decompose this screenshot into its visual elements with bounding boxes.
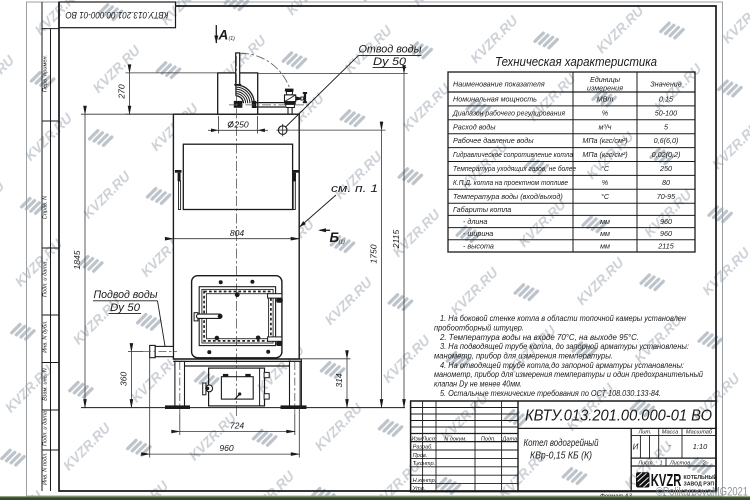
svg-text:N докум.: N докум. bbox=[444, 436, 467, 442]
svg-text:Наименование показателя: Наименование показателя bbox=[453, 80, 545, 89]
svg-text:мм: мм bbox=[600, 217, 610, 226]
svg-text:МВт: МВт bbox=[597, 95, 614, 104]
svg-text:МПа (кгс/см²): МПа (кгс/см²) bbox=[582, 150, 627, 159]
svg-text:80: 80 bbox=[662, 178, 670, 187]
svg-text:Габариты котла: Габариты котла bbox=[453, 205, 511, 214]
svg-text:°С: °С bbox=[601, 164, 610, 173]
svg-text:2115: 2115 bbox=[391, 230, 401, 250]
svg-text:0,6(6,0): 0,6(6,0) bbox=[654, 136, 679, 145]
svg-text:К.П.Д. котла на проектном топл: К.П.Д. котла на проектном топливе bbox=[453, 178, 568, 187]
svg-text:Лит.: Лит. bbox=[637, 430, 651, 436]
svg-text:Подп.: Подп. bbox=[481, 436, 496, 442]
svg-text:1:10: 1:10 bbox=[693, 442, 708, 451]
svg-text:960: 960 bbox=[660, 229, 672, 238]
svg-text:0,02(0,2): 0,02(0,2) bbox=[652, 150, 681, 159]
svg-text:Гидравлическое сопротивление к: Гидравлическое сопротивление котла bbox=[453, 150, 573, 159]
svg-text:Н.контр.: Н.контр. bbox=[413, 478, 437, 484]
svg-text:2. Температура воды на входе: 2. Температура воды на входе 70°С, на вы… bbox=[439, 333, 639, 342]
svg-text:1. На боковой стенке котла в: 1. На боковой стенке котла в области топ… bbox=[440, 314, 687, 323]
svg-text:Рабочее давление воды: Рабочее давление воды bbox=[453, 136, 534, 145]
svg-text:724: 724 bbox=[230, 421, 245, 431]
svg-text:Техническая характеристика: Техническая характеристика bbox=[495, 55, 657, 69]
svg-text:(1): (1) bbox=[339, 240, 346, 246]
svg-text:Изм: Изм bbox=[411, 436, 422, 442]
svg-text:1845: 1845 bbox=[72, 250, 82, 269]
svg-text:измерения: измерения bbox=[587, 84, 623, 93]
svg-text:Дата: Дата bbox=[501, 436, 517, 442]
svg-text:КВр-0,15 КБ (К): КВр-0,15 КБ (К) bbox=[530, 451, 592, 462]
svg-text:Подвод воды: Подвод воды bbox=[94, 289, 159, 301]
svg-text:Лист: Лист bbox=[421, 436, 437, 442]
svg-text:мм: мм bbox=[600, 241, 610, 250]
svg-text:250: 250 bbox=[659, 164, 672, 173]
svg-text:- ширина: - ширина bbox=[463, 229, 493, 238]
svg-text:Dy 50: Dy 50 bbox=[110, 302, 141, 314]
svg-text:КВТУ.013.201.00.000-01 ВО: КВТУ.013.201.00.000-01 ВО bbox=[65, 10, 169, 21]
svg-text:Отвод воды: Отвод воды bbox=[359, 43, 423, 55]
svg-text:мм: мм bbox=[600, 229, 610, 238]
svg-text:клапан Dу не менее 40мм.: клапан Dу не менее 40мм. bbox=[434, 380, 522, 389]
svg-text:360: 360 bbox=[119, 372, 129, 387]
svg-text:4. На отводящей трубе котла,д: 4. На отводящей трубе котла,до запорной … bbox=[440, 361, 684, 370]
svg-text:Котел водогрейный: Котел водогрейный bbox=[524, 438, 599, 449]
svg-text:%: % bbox=[602, 108, 609, 117]
svg-text:270: 270 bbox=[117, 84, 127, 100]
svg-text:1: 1 bbox=[659, 460, 662, 466]
svg-text:Пров.: Пров. bbox=[413, 453, 428, 459]
svg-text:Листов: Листов bbox=[669, 460, 690, 466]
svg-text:Разраб.: Разраб. bbox=[413, 444, 433, 450]
svg-text:см. п. 1: см. п. 1 bbox=[331, 183, 378, 195]
svg-text:Подп. и дата: Подп. и дата bbox=[43, 262, 49, 297]
svg-text:м³/ч: м³/ч bbox=[598, 122, 611, 131]
svg-text:Лист: Лист bbox=[637, 460, 653, 466]
svg-text:манометр, прибор для измерения: манометр, прибор для измерения температу… bbox=[434, 351, 613, 360]
svg-text:Температура уходящих газов, не: Температура уходящих газов, не более bbox=[453, 164, 576, 173]
svg-text:Масштаб: Масштаб bbox=[686, 430, 713, 436]
svg-text:Номинальная мощность: Номинальная мощность bbox=[453, 95, 537, 104]
svg-text:0,15: 0,15 bbox=[659, 95, 674, 104]
svg-text:960: 960 bbox=[660, 217, 672, 226]
svg-text:- высота: - высота bbox=[463, 241, 494, 250]
svg-text:Инв. N дубл.: Инв. N дубл. bbox=[43, 320, 49, 352]
svg-text:804: 804 bbox=[230, 228, 245, 238]
svg-text:Подп. и дата: Подп. и дата bbox=[43, 411, 49, 446]
svg-text:°С: °С bbox=[601, 192, 610, 201]
svg-text:2115: 2115 bbox=[657, 241, 674, 250]
svg-text:Инв. N подл.: Инв. N подл. bbox=[43, 452, 49, 485]
svg-text:70-95: 70-95 bbox=[657, 192, 676, 201]
svg-text:%: % bbox=[602, 178, 609, 187]
svg-text:50-100: 50-100 bbox=[655, 108, 677, 117]
svg-text:Значение: Значение bbox=[650, 80, 682, 89]
svg-text:МПа (кгс/см²): МПа (кгс/см²) bbox=[582, 136, 627, 145]
svg-text:Справ. N: Справ. N bbox=[43, 195, 49, 219]
svg-text:Диапазон рабочего регулировани: Диапазон рабочего регулирования bbox=[452, 108, 565, 117]
svg-text:250: 250 bbox=[233, 119, 249, 129]
svg-text:Температура воды (вход/выход): Температура воды (вход/выход) bbox=[453, 192, 563, 201]
svg-text:А: А bbox=[218, 28, 229, 43]
svg-text:Утв.: Утв. bbox=[412, 486, 426, 492]
svg-text:Перв. примен.: Перв. примен. bbox=[43, 55, 49, 92]
svg-text:И: И bbox=[633, 443, 639, 452]
svg-text:(1): (1) bbox=[229, 36, 236, 42]
svg-text:манометр, прибор для измерения: манометр, прибор для измерения температу… bbox=[434, 370, 704, 379]
svg-text:Расход воды: Расход воды bbox=[453, 122, 496, 131]
svg-text:КВТУ.013.201.00.000-01 ВО: КВТУ.013.201.00.000-01 ВО bbox=[525, 408, 712, 425]
svg-text:Взам. инв. N: Взам. инв. N bbox=[43, 367, 49, 401]
svg-text:КОТЕЛЬНЫЙ: КОТЕЛЬНЫЙ bbox=[684, 473, 718, 481]
svg-text:314: 314 bbox=[334, 373, 344, 388]
svg-text:Т.контр.: Т.контр. bbox=[413, 461, 436, 467]
svg-text:3. На подводящей трубе котла,: 3. На подводящей трубе котла, до запорно… bbox=[440, 342, 689, 351]
svg-text:1750: 1750 bbox=[369, 244, 379, 263]
svg-text:960: 960 bbox=[219, 443, 234, 453]
svg-text:пробоотборный штуцер.: пробоотборный штуцер. bbox=[434, 324, 524, 333]
svg-text:Dy 50: Dy 50 bbox=[373, 56, 407, 68]
svg-text:Масса: Масса bbox=[662, 430, 679, 436]
svg-text:5. Остальные технические треб: 5. Остальные технические требования по О… bbox=[440, 389, 661, 398]
svg-text:- длина: - длина bbox=[463, 217, 487, 226]
